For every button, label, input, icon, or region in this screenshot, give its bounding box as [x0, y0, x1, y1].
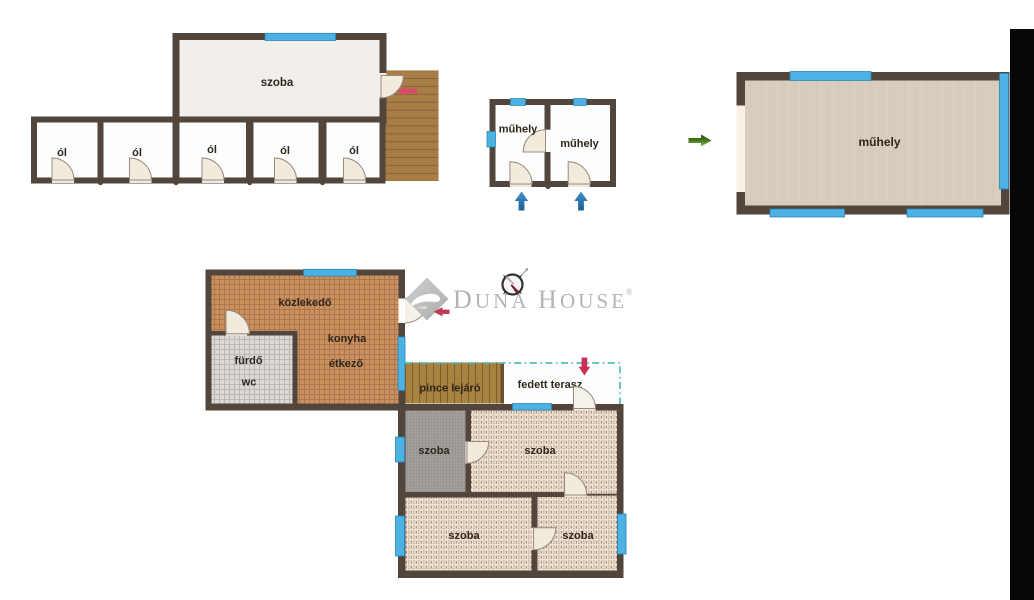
- svg-text:étkező: étkező: [329, 358, 364, 370]
- svg-text:ól: ól: [57, 147, 67, 159]
- svg-text:wc: wc: [241, 377, 257, 389]
- svg-text:®: ®: [626, 287, 633, 297]
- svg-text:szoba: szoba: [418, 445, 450, 457]
- svg-text:szoba: szoba: [562, 530, 594, 542]
- svg-text:közlekedő: közlekedő: [278, 297, 331, 309]
- svg-text:konyha: konyha: [328, 333, 367, 345]
- svg-text:ól: ól: [132, 147, 142, 159]
- svg-text:műhely: műhely: [499, 124, 538, 136]
- svg-text:pince lejáró: pince lejáró: [419, 383, 480, 395]
- svg-text:ól: ól: [349, 145, 359, 157]
- svg-text:szoba: szoba: [524, 445, 556, 457]
- svg-text:fürdő: fürdő: [234, 355, 262, 367]
- svg-text:ól: ól: [280, 145, 290, 157]
- svg-text:szoba: szoba: [261, 77, 294, 89]
- svg-text:műhely: műhely: [560, 138, 599, 150]
- svg-text:műhely: műhely: [858, 135, 900, 149]
- svg-text:ól: ól: [207, 144, 217, 156]
- svg-text:szoba: szoba: [448, 530, 480, 542]
- svg-text:DUNA HOUSE: DUNA HOUSE: [453, 285, 627, 314]
